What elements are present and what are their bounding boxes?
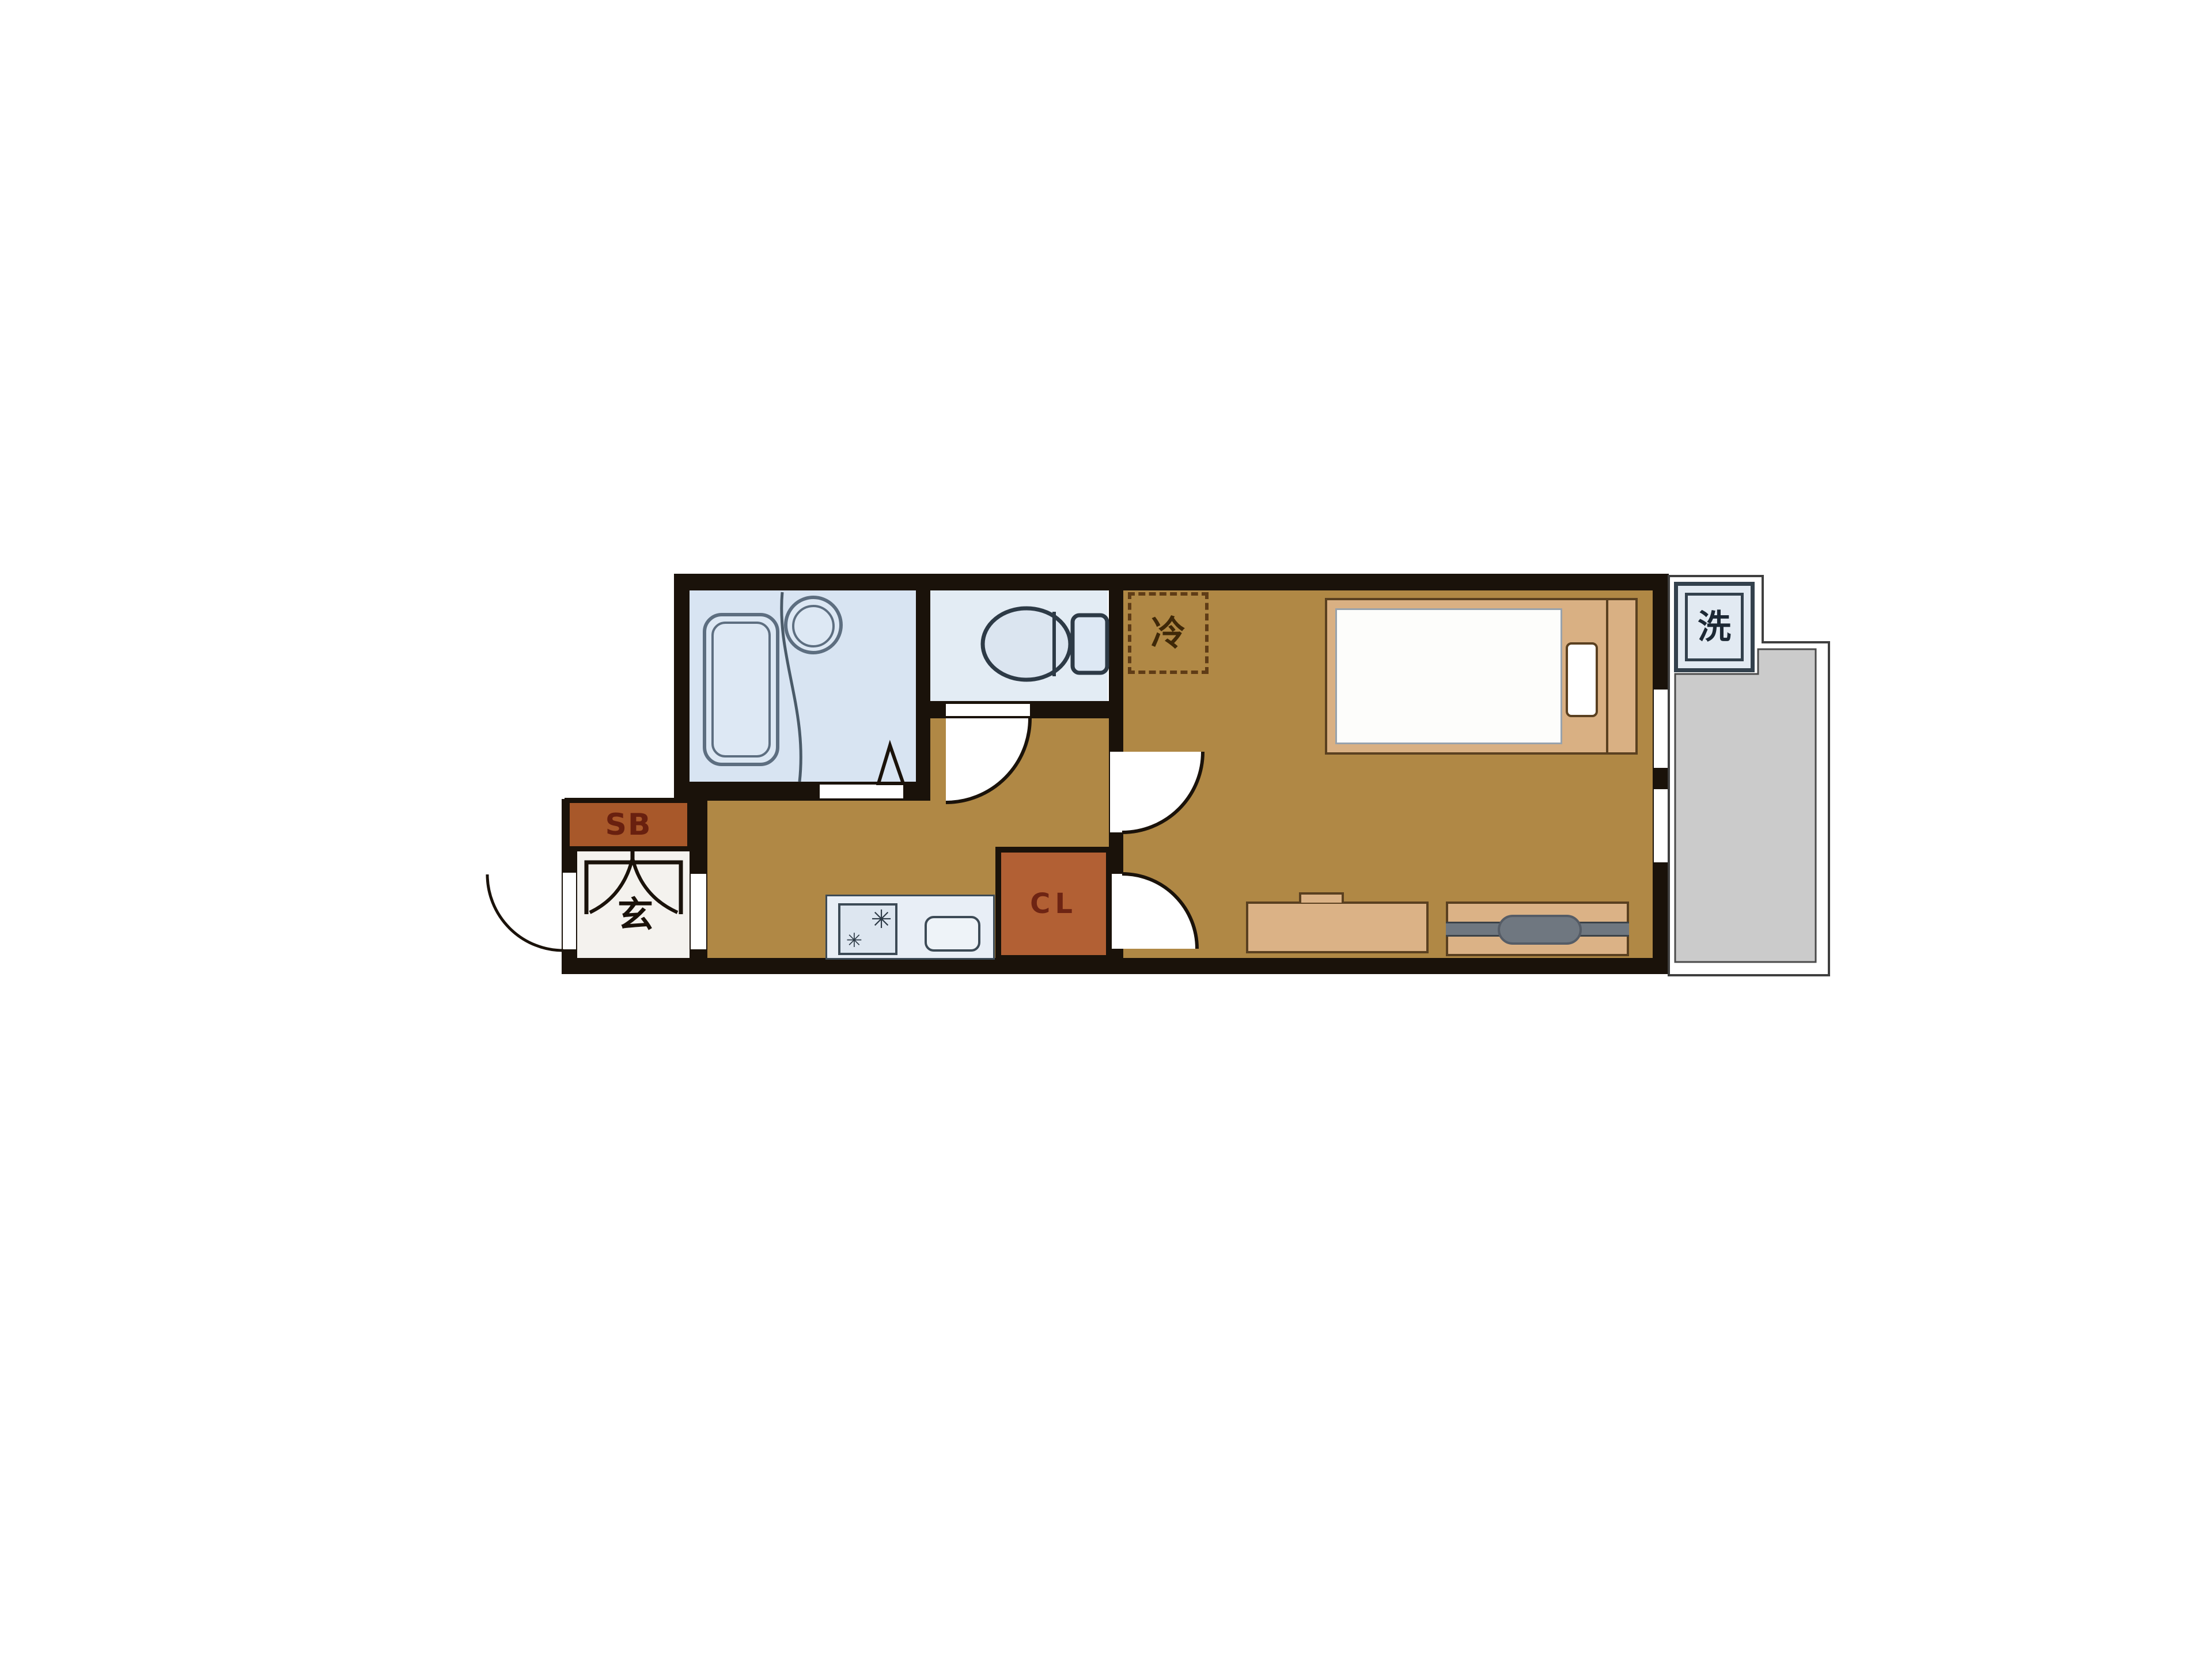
- toilet-tank: [1073, 615, 1107, 673]
- tv-unit: [1498, 915, 1582, 945]
- shoe-box-label: SB: [605, 810, 652, 840]
- entrance-label: 玄: [615, 892, 656, 938]
- closet-box: CL: [995, 847, 1112, 961]
- refrigerator-label: 冷: [1139, 611, 1197, 657]
- entrance-door-arc: [487, 874, 563, 950]
- stove-burner-icon-small: ✳: [842, 929, 866, 953]
- desk: [1246, 902, 1429, 953]
- toilet-bowl: [983, 608, 1070, 680]
- shoe-box: SB: [565, 798, 692, 851]
- bed-pillow: [1566, 642, 1598, 717]
- floorplan-canvas: ✳ ✳ 冷 洗 SB CL 玄: [0, 0, 2212, 1659]
- desk-notch: [1299, 892, 1344, 903]
- washing-machine-label: 洗: [1697, 606, 1732, 647]
- kitchen-sink: [925, 916, 980, 952]
- bathroom-door-triangle: [878, 745, 903, 783]
- closet-label: CL: [1030, 890, 1077, 918]
- bathtub: [704, 615, 778, 764]
- stove-burner-icon-large: ✳: [867, 906, 896, 934]
- balcony-deck: [1675, 649, 1816, 962]
